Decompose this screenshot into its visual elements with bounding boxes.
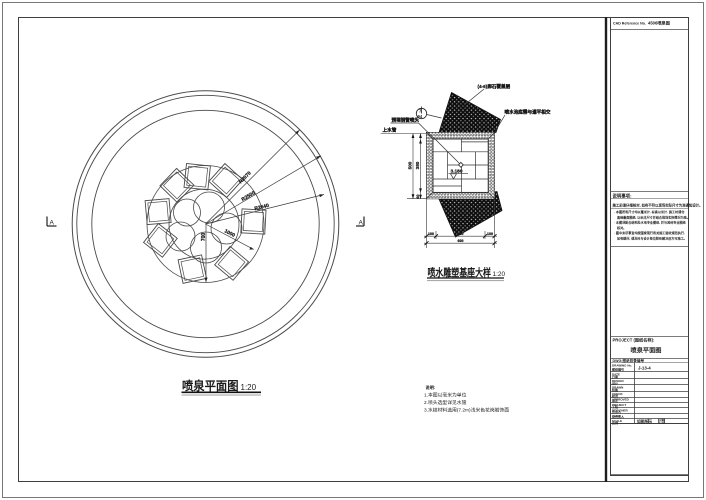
svg-text:A: A	[50, 220, 55, 227]
svg-text:600: 600	[458, 239, 464, 243]
svg-text:100: 100	[487, 232, 493, 236]
svg-text:2.喷头选型详见水施: 2.喷头选型详见水施	[424, 399, 467, 406]
svg-text:喷泉平面图: 喷泉平面图	[182, 378, 239, 393]
svg-text:1:20: 1:20	[659, 421, 665, 425]
svg-text:如有疑问, 请及时与设计单位联系解决后方可施工。: 如有疑问, 请及时与设计单位联系解决后方可施工。	[617, 236, 687, 241]
svg-text:比例: 比例	[612, 420, 618, 425]
svg-text:喷水池底需与道平相交: 喷水池底需与道平相交	[505, 109, 551, 116]
svg-text:喷水雕塑基座大样: 喷水雕塑基座大样	[428, 266, 492, 279]
svg-text:施工前请仔细核对, 如有不符以现场实际尺寸为准通知设计。: 施工前请仔细核对, 如有不符以现场实际尺寸为准通知设计。	[613, 203, 703, 208]
svg-text:预埋钢管喷头: 预埋钢管喷头	[392, 117, 420, 124]
svg-text:如图所示: 如图所示	[637, 419, 652, 424]
svg-text:喷泉平面图: 喷泉平面图	[631, 347, 662, 355]
svg-text:- 图中未尽事宜均按国家现行有关施工验收规范执行,: - 图中未尽事宜均按国家现行有关施工验收规范执行,	[614, 230, 685, 235]
svg-text:3.水钵材料选用(7.2m)浅米色花岗岩饰面: 3.水钵材料选用(7.2m)浅米色花岗岩饰面	[424, 406, 509, 413]
svg-text:直接量度图纸, 以标注尺寸并结合现场实际情况为准。: 直接量度图纸, 以标注尺寸并结合现场实际情况为准。	[617, 214, 690, 219]
svg-text:- 本图须配合结构及水电专业图纸, 并与其他专业图纸: - 本图须配合结构及水电专业图纸, 并与其他专业图纸	[614, 220, 687, 225]
svg-text:(4-6)卵石覆盖层: (4-6)卵石覆盖层	[478, 83, 511, 90]
svg-text:1.本图以毫米为单位: 1.本图以毫米为单位	[424, 391, 467, 398]
svg-text:1:20: 1:20	[493, 271, 506, 278]
svg-text:- 本图所有尺寸均以毫米计, 标高以米计, 施工时请勿: - 本图所有尺寸均以毫米计, 标高以米计, 施工时请勿	[614, 209, 684, 214]
svg-text:700: 700	[201, 233, 207, 242]
svg-text:100: 100	[428, 232, 434, 236]
svg-text:A: A	[359, 220, 364, 227]
svg-text:PROJECT (图纸名称):: PROJECT (图纸名称):	[613, 337, 655, 344]
svg-text:1:20: 1:20	[241, 383, 257, 392]
svg-text:4506喷泉图: 4506喷泉图	[648, 20, 670, 27]
svg-text:CAD Reference No.: CAD Reference No.	[613, 22, 646, 26]
svg-text:60: 60	[416, 195, 420, 199]
svg-text:说明:: 说明:	[426, 384, 436, 391]
svg-text:上水管: 上水管	[383, 127, 397, 134]
svg-text:图纸编号: 图纸编号	[612, 367, 624, 372]
svg-text:380: 380	[415, 161, 420, 169]
svg-text:500: 500	[408, 161, 413, 169]
svg-text:核对。: 核对。	[617, 225, 626, 230]
svg-text:J-13-4: J-13-4	[638, 366, 651, 371]
svg-text:400: 400	[458, 232, 464, 236]
